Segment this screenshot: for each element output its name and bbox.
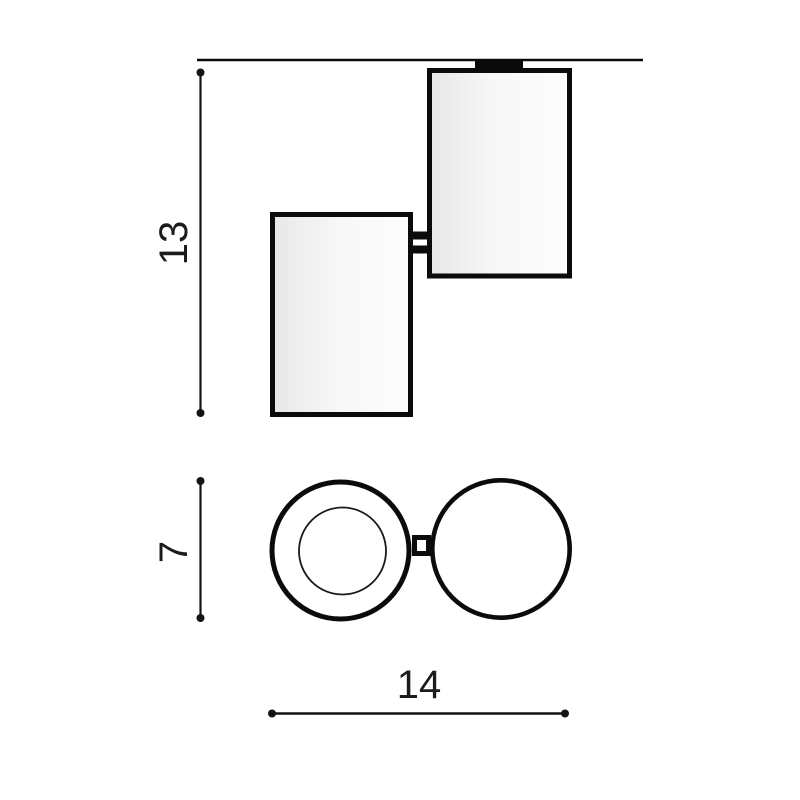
dimension-diameter: 7 [152, 477, 205, 622]
dimension-endpoint-dot [561, 710, 569, 718]
top-view [272, 480, 570, 619]
top-view-hinge [415, 538, 429, 554]
top-view-left-circle [272, 482, 409, 619]
dimension-label-7: 7 [152, 541, 196, 563]
dimension-endpoint-dot [197, 477, 205, 485]
dimension-label-13: 13 [152, 221, 196, 266]
ceiling-mount [475, 59, 523, 69]
dimension-endpoint-dot [197, 69, 205, 77]
side-view [197, 59, 643, 415]
top-view-right-circle [432, 480, 569, 617]
dimension-height: 13 [152, 69, 205, 418]
lower-cylinder-body [273, 215, 411, 415]
dimension-width: 14 [268, 663, 569, 718]
dimension-endpoint-dot [197, 614, 205, 622]
technical-drawing-page: 13 7 14 [0, 0, 800, 800]
technical-drawing-canvas: 13 7 14 [0, 0, 800, 800]
dimension-label-14: 14 [397, 663, 442, 707]
dimension-endpoint-dot [197, 409, 205, 417]
dimension-endpoint-dot [268, 710, 276, 718]
upper-cylinder-body [430, 71, 570, 277]
